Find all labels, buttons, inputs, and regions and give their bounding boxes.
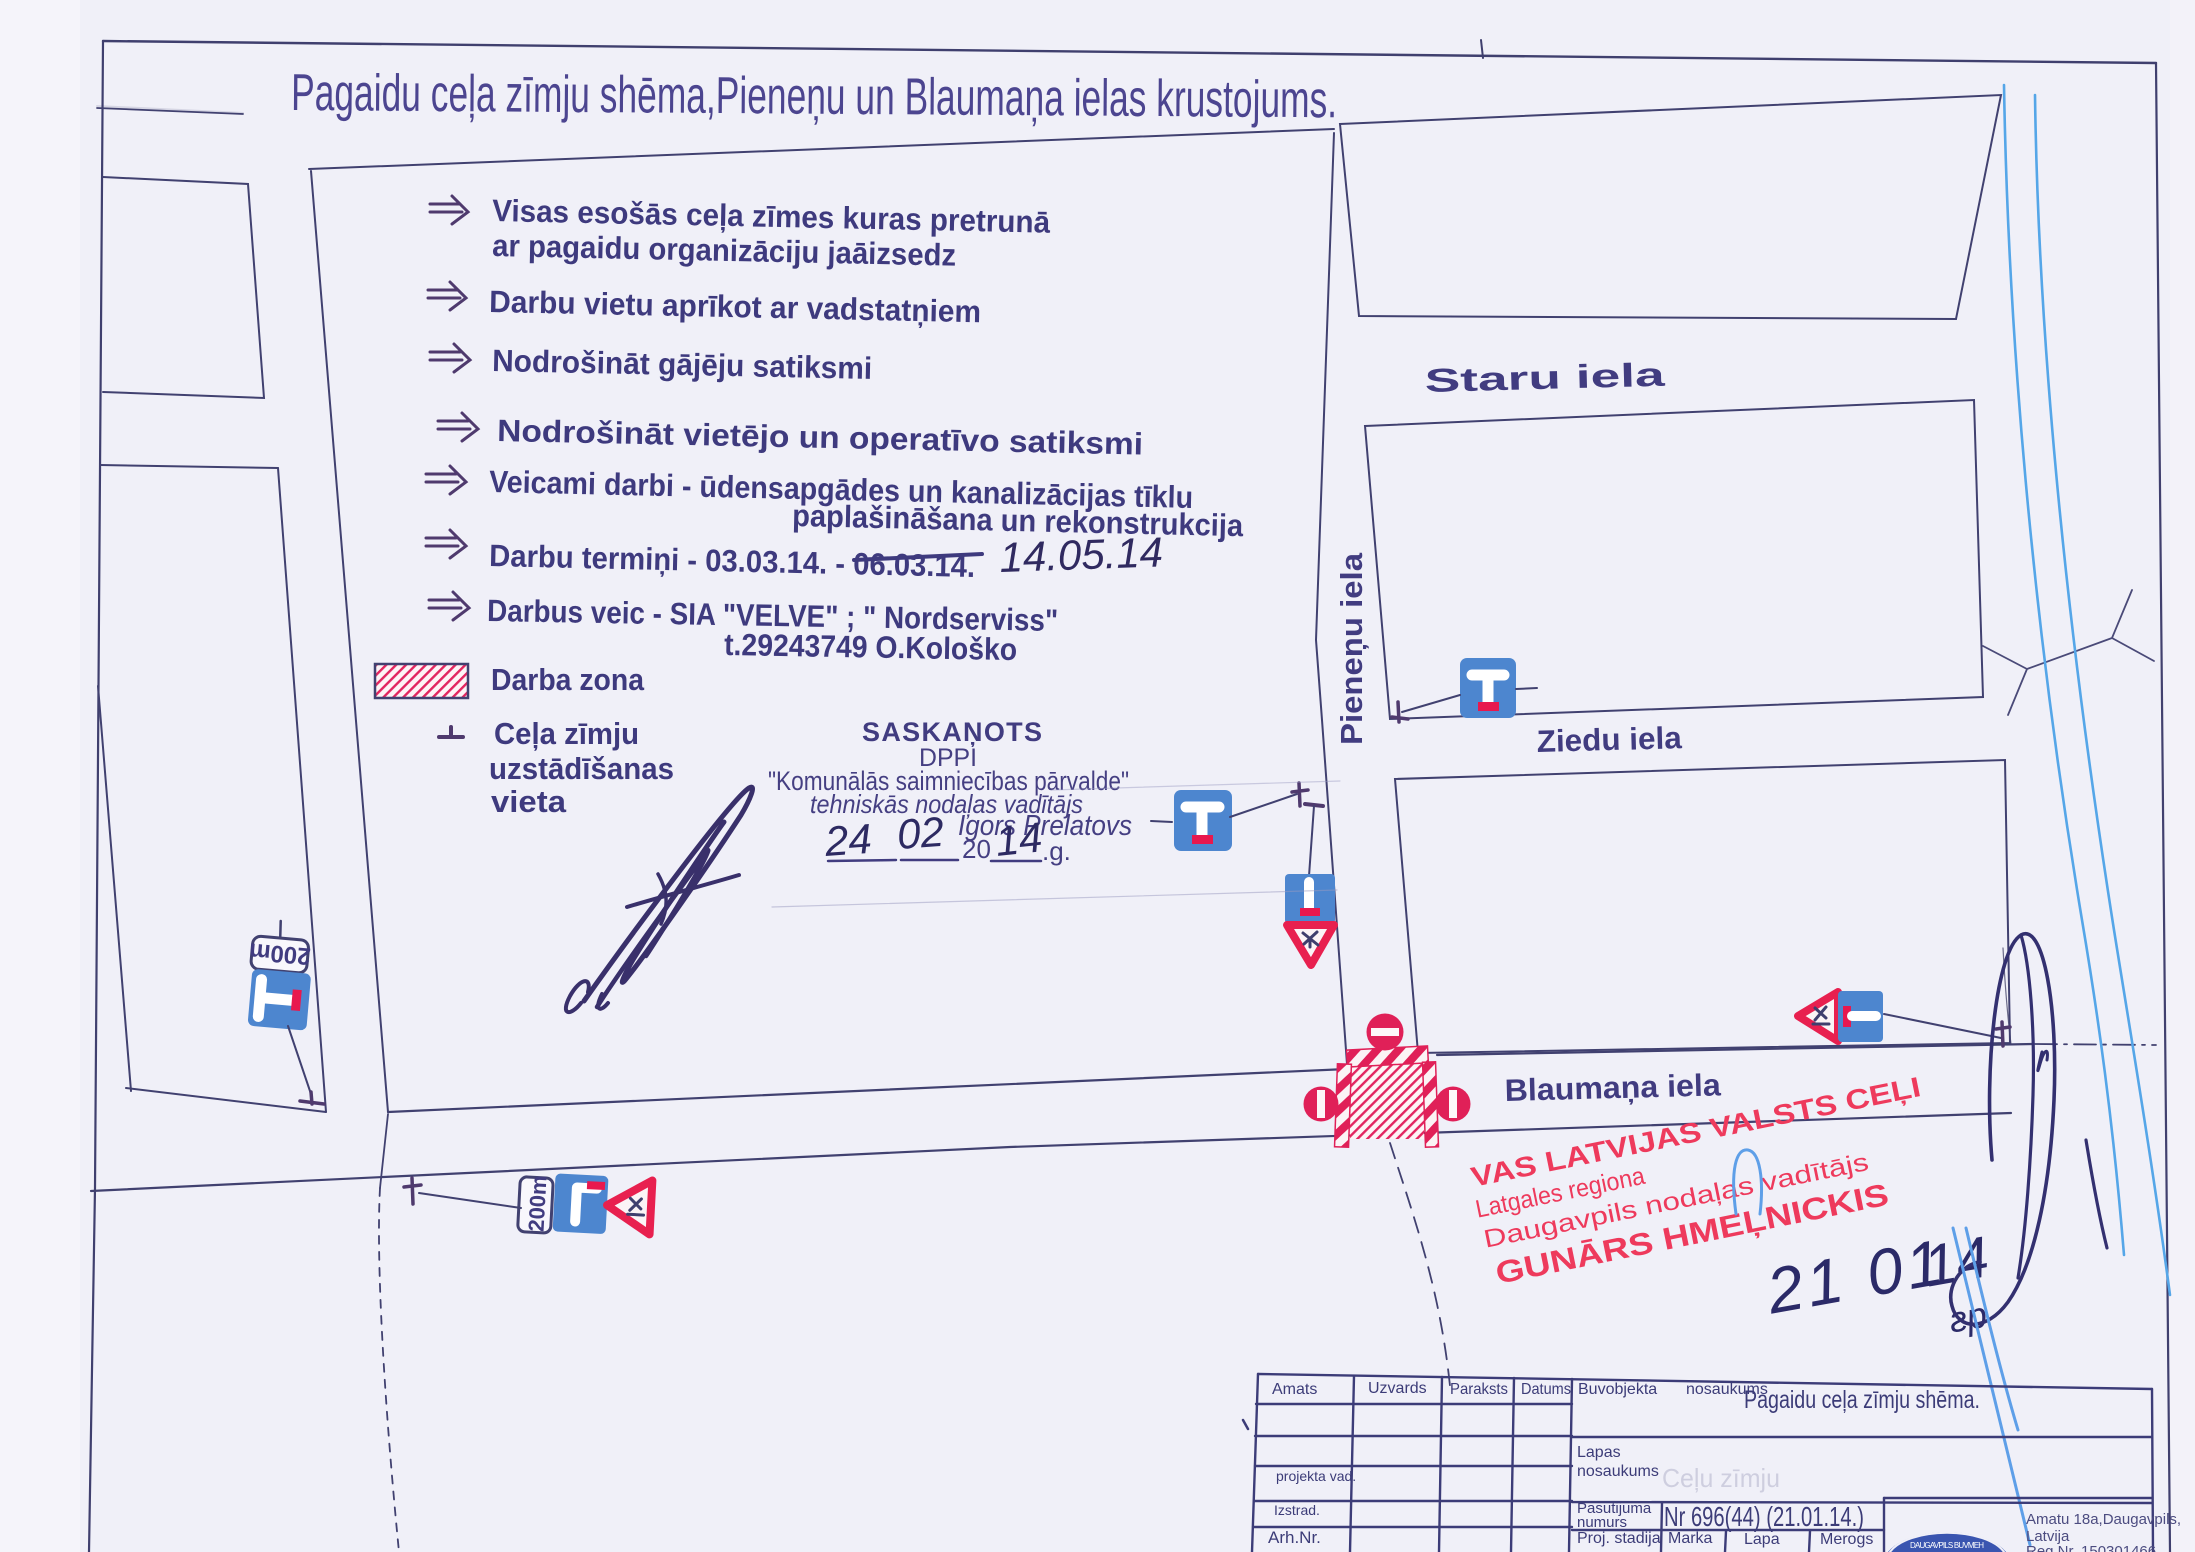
svg-text:Marka: Marka xyxy=(1668,1530,1713,1547)
svg-text:Ceļu zīmju: Ceļu zīmju xyxy=(1662,1463,1780,1493)
svg-text:Nr 696(44) (21.01.14.): Nr 696(44) (21.01.14.) xyxy=(1664,1501,1864,1532)
svg-text:projekta vad.: projekta vad. xyxy=(1276,1468,1356,1484)
svg-text:20: 20 xyxy=(962,834,991,864)
svg-text:Ceļa zīmju: Ceļa zīmju xyxy=(494,716,639,751)
svg-text:.g.: .g. xyxy=(1042,836,1071,866)
svg-text:Lapa: Lapa xyxy=(1744,1531,1780,1548)
svg-text:Blaumaņa iela: Blaumaņa iela xyxy=(1504,1067,1722,1108)
svg-text:Proj. stadija: Proj. stadija xyxy=(1577,1530,1661,1547)
svg-text:Darba zona: Darba zona xyxy=(491,662,645,697)
svg-text:uzstādīšanas: uzstādīšanas xyxy=(489,751,674,786)
svg-text:t.29243749 O.Kološko: t.29243749 O.Kološko xyxy=(724,627,1018,667)
svg-text:Merogs: Merogs xyxy=(1820,1531,1873,1548)
svg-text:Staru iela: Staru iela xyxy=(1424,356,1666,399)
svg-text:Paraksts: Paraksts xyxy=(1450,1381,1508,1398)
svg-text:nosaukums: nosaukums xyxy=(1577,1463,1659,1480)
svg-text:Ziedu iela: Ziedu iela xyxy=(1536,720,1683,759)
svg-text:Uzvards: Uzvards xyxy=(1368,1380,1427,1397)
svg-text:Pieneņu iela: Pieneņu iela xyxy=(1334,552,1369,745)
svg-text:24: 24 xyxy=(822,815,873,865)
svg-text:Amats: Amats xyxy=(1272,1381,1317,1398)
svg-text:14: 14 xyxy=(993,813,1044,865)
svg-text:Datums: Datums xyxy=(1521,1381,1571,1398)
svg-text:Reg.Nr. 150301466: Reg.Nr. 150301466 xyxy=(2026,1543,2156,1552)
svg-text:numurs: numurs xyxy=(1577,1514,1627,1531)
svg-text:SASKAŅOTS: SASKAŅOTS xyxy=(862,717,1042,747)
svg-text:Pagaidu ceļa zīmju shēma.: Pagaidu ceļa zīmju shēma. xyxy=(1744,1386,1980,1414)
svg-text:Lapas: Lapas xyxy=(1577,1444,1621,1461)
svg-text:DAUGAVPILS BUVMEH: DAUGAVPILS BUVMEH xyxy=(1910,1541,1984,1550)
svg-text:14.05.14: 14.05.14 xyxy=(999,528,1164,581)
svg-text:vieta: vieta xyxy=(491,784,567,819)
svg-text:Arh.Nr.: Arh.Nr. xyxy=(1268,1528,1321,1547)
svg-text:200m: 200m xyxy=(524,1175,552,1233)
svg-text:200m: 200m xyxy=(248,937,312,969)
svg-text:Izstrad.: Izstrad. xyxy=(1274,1502,1320,1518)
svg-text:Amatu 18a,Daugavpils,: Amatu 18a,Daugavpils, xyxy=(2026,1511,2181,1528)
svg-text:Buvobjekta: Buvobjekta xyxy=(1578,1381,1657,1398)
svg-text:02: 02 xyxy=(895,808,945,858)
svg-text:Pagaidu ceļa zīmju shēma,Piene: Pagaidu ceļa zīmju shēma,Pieneņu un Blau… xyxy=(291,64,1337,129)
